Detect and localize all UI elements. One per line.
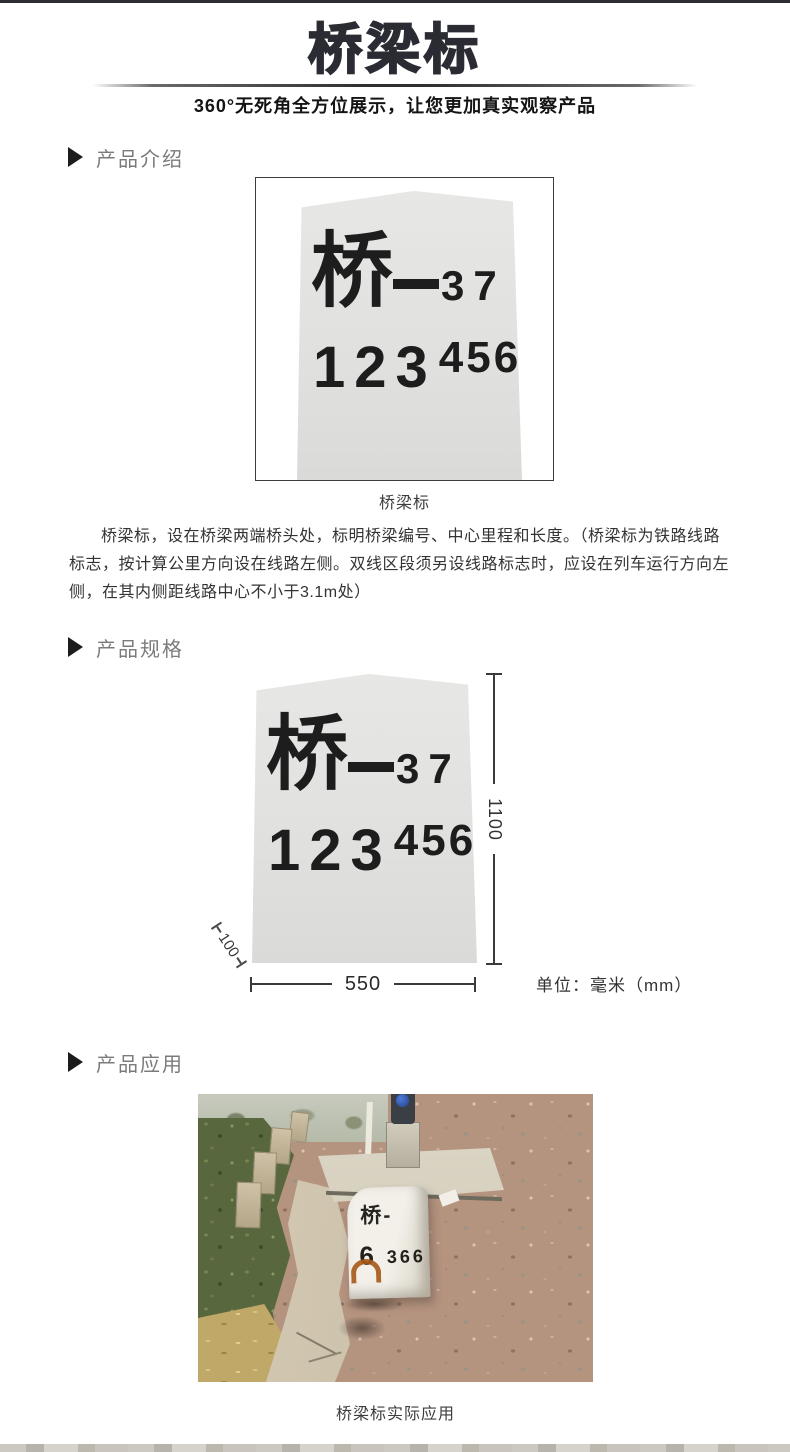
depth-dimension-label: 100 <box>214 928 244 962</box>
top-divider-bar <box>0 0 790 3</box>
section-label-specs: 产品规格 <box>96 633 184 662</box>
dimension-cap <box>474 977 476 992</box>
photo-signal-lens <box>396 1094 409 1107</box>
marker-number-main: 123 <box>313 340 437 396</box>
photo-concrete-block <box>235 1182 262 1229</box>
marker-number-top: 37 <box>396 749 461 789</box>
width-dimension-line: 550 <box>250 975 476 993</box>
intro-description: 桥梁标，设在桥梁两端桥头处，标明桥梁编号、中心里程和长度。（桥梁标为铁路线路标志… <box>69 523 731 607</box>
photo-marker-text-line1: 桥- <box>360 1198 429 1230</box>
photo-signal-pedestal <box>386 1122 420 1168</box>
next-photo-edge-strip <box>0 1444 790 1452</box>
section-label-intro: 产品介绍 <box>96 143 184 172</box>
dimension-segment <box>394 983 474 985</box>
marker-stone-graphic: 桥 — 37 123 456 <box>297 190 522 480</box>
page-subtitle: 360°无死角全方位展示，让您更加真实观察产品 <box>0 94 790 119</box>
triangle-bullet-icon <box>68 147 83 167</box>
photo-marker-number-small: 366 <box>387 1247 427 1267</box>
marker-line2: 123 456 <box>268 823 477 879</box>
section-header-application: 产品应用 <box>68 1050 790 1074</box>
marker-line1: 桥 — 37 <box>266 715 477 795</box>
marker-number-top: 37 <box>441 266 506 306</box>
height-dimension-line: 1100 <box>484 673 504 965</box>
photo-dark-patch <box>338 1316 386 1340</box>
triangle-bullet-icon <box>68 637 83 657</box>
marker-dash: — <box>348 737 394 781</box>
marker-line1: 桥 — 37 <box>311 232 522 312</box>
marker-stone-graphic: 桥 — 37 123 456 <box>252 673 477 963</box>
width-dimension-label: 550 <box>332 973 394 996</box>
marker-number-main: 123 <box>268 823 392 879</box>
dimension-segment <box>493 675 495 784</box>
specs-diagram: 桥 — 37 123 456 1100 550 100 单位：毫米（mm） <box>0 659 790 1004</box>
marker-number-sup: 456 <box>394 820 476 862</box>
section-header-intro: 产品介绍 <box>68 145 790 169</box>
triangle-bullet-icon <box>68 1052 83 1072</box>
dimension-segment <box>493 854 495 963</box>
marker-stone-text: 桥 — 37 123 456 <box>252 673 477 963</box>
marker-dash: — <box>393 254 439 298</box>
photo-rust-stain <box>351 1258 382 1283</box>
depth-dimension-line: 100 <box>200 907 258 982</box>
marker-number-sup: 456 <box>439 337 521 379</box>
intro-product-image: 桥 — 37 123 456 <box>255 177 554 481</box>
section-label-application: 产品应用 <box>96 1048 184 1077</box>
dimension-segment <box>252 983 332 985</box>
marker-char: 桥 <box>311 232 393 312</box>
marker-char: 桥 <box>266 715 348 795</box>
dimension-cap <box>486 963 502 965</box>
section-header-specs: 产品规格 <box>68 635 790 659</box>
application-photo: 桥- 6 366 <box>198 1094 593 1382</box>
title-underline <box>92 84 698 87</box>
marker-stone-text: 桥 — 37 123 456 <box>297 190 522 480</box>
unit-label: 单位：毫米（mm） <box>536 971 692 996</box>
height-dimension-label: 1100 <box>484 798 505 841</box>
intro-image-caption: 桥梁标 <box>255 489 554 513</box>
marker-line2: 123 456 <box>313 340 522 396</box>
application-caption: 桥梁标实际应用 <box>198 1400 593 1424</box>
page-title: 桥梁标 <box>0 21 790 79</box>
